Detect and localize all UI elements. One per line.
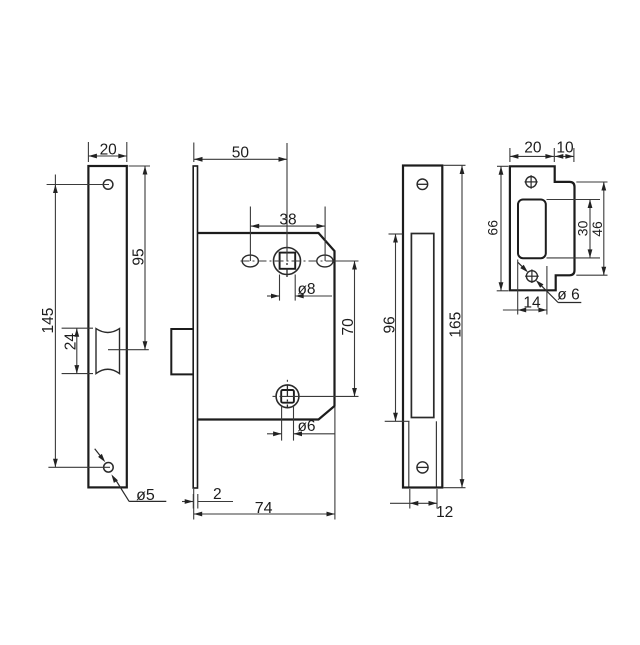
svg-text:14: 14 [523, 295, 541, 312]
svg-text:95: 95 [130, 248, 147, 265]
svg-text:ø 6: ø 6 [557, 286, 579, 303]
svg-text:20: 20 [524, 140, 542, 157]
svg-text:ø5: ø5 [136, 487, 155, 504]
svg-text:20: 20 [100, 141, 118, 158]
svg-text:66: 66 [485, 220, 501, 236]
svg-text:30: 30 [575, 220, 591, 236]
svg-text:74: 74 [255, 500, 273, 517]
svg-text:96: 96 [381, 316, 398, 333]
svg-text:38: 38 [279, 211, 296, 228]
svg-text:12: 12 [436, 504, 453, 521]
svg-text:50: 50 [232, 144, 250, 161]
svg-text:70: 70 [340, 318, 357, 336]
svg-text:46: 46 [589, 221, 605, 237]
svg-text:10: 10 [556, 140, 574, 157]
svg-text:ø8: ø8 [297, 281, 315, 298]
svg-text:2: 2 [213, 486, 222, 503]
svg-text:145: 145 [40, 308, 57, 334]
svg-text:24: 24 [62, 333, 79, 351]
svg-text:ø6: ø6 [297, 418, 315, 435]
svg-text:165: 165 [447, 312, 464, 338]
